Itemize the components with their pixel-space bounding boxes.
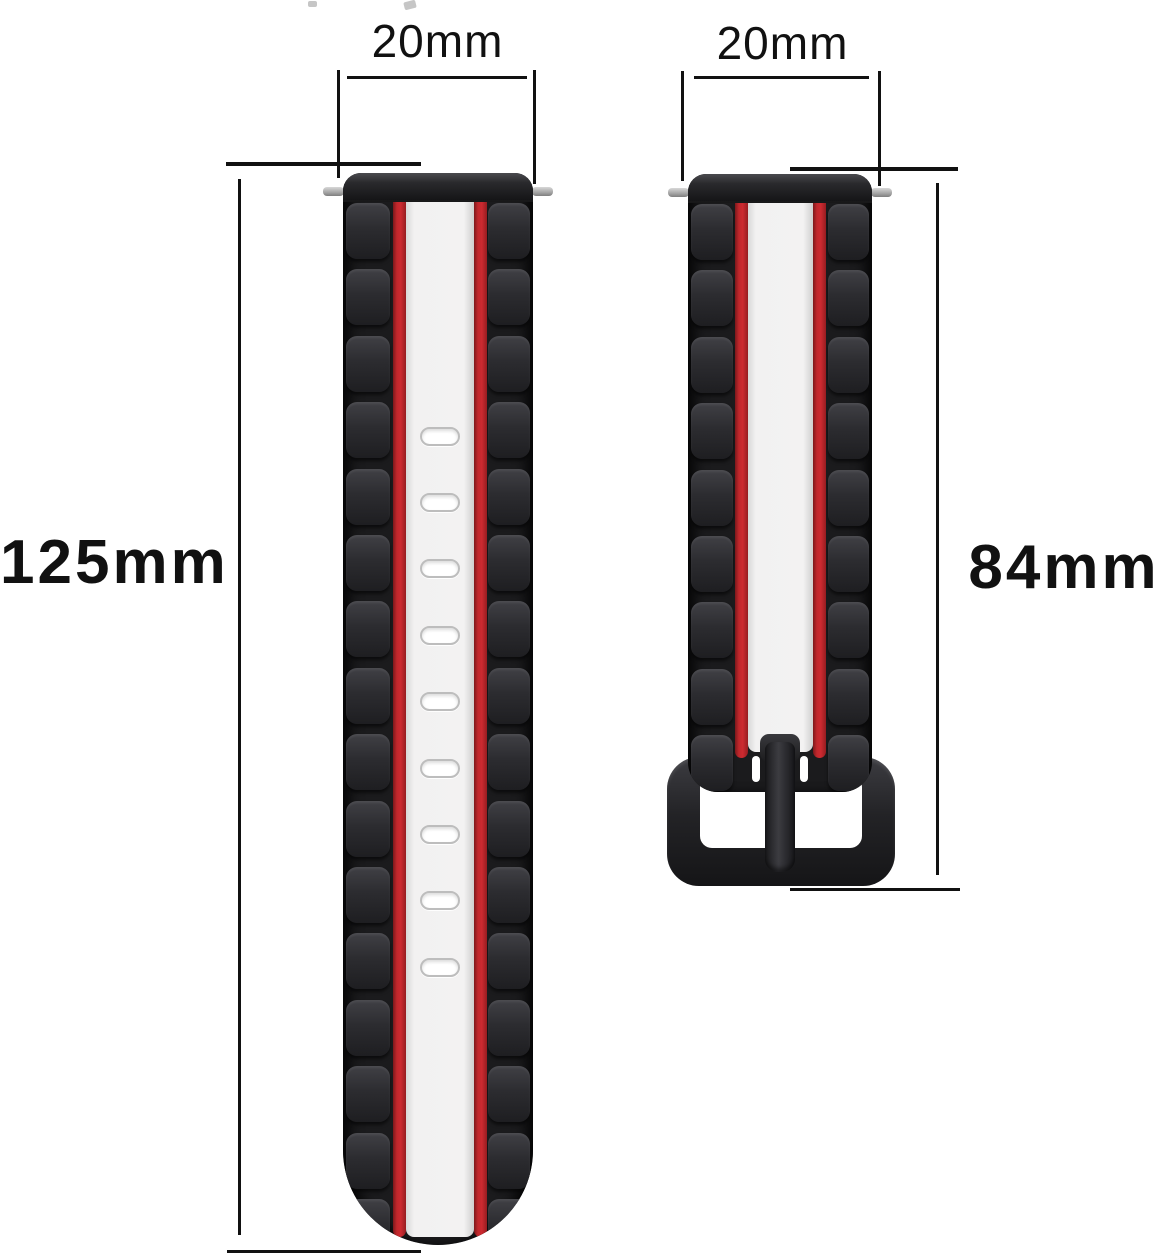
strap-link-segment [828,735,869,791]
cropped-mark [403,0,417,10]
strap-link-segment [828,204,869,260]
dim-line-right-length [936,183,939,875]
right-band-side-links [828,174,869,792]
white-stripe [748,198,813,752]
adjustment-hole [420,692,460,711]
strap-link-segment [691,403,733,459]
cropped-mark [308,1,317,7]
spring-bar-pin [323,187,344,196]
adjustment-hole [420,825,460,844]
right-band-buckle-strap [688,174,872,792]
strap-link-segment [828,270,869,326]
strap-link-segment [828,337,869,393]
strap-link-segment [691,204,733,260]
right-band-length-label: 84mm [966,532,1156,603]
right-band-center-stripes [735,198,826,758]
red-stripe [813,198,826,758]
strap-link-segment [691,536,733,592]
prong-notch [800,756,808,782]
strap-link-segment [828,470,869,526]
strap-link-segment [828,669,869,725]
dim-tick-right-width-a [681,71,684,181]
spring-bar-pin [532,187,553,196]
adjustment-hole [420,891,460,910]
dim-line-left-width [347,76,527,79]
dim-line-left-length [238,179,241,1235]
adjustment-hole [420,626,460,645]
adjustment-hole [420,759,460,778]
strap-link-segment [691,735,733,791]
strap-link-segment [691,337,733,393]
dim-tick-left-width-b [533,70,536,184]
strap-link-segment [691,470,733,526]
dim-tick-left-length-top [226,162,421,166]
buckle-prong [765,742,795,872]
adjustment-hole [420,427,460,446]
prong-notch [752,756,760,782]
right-band-width-label: 20mm [685,16,880,70]
adjustment-hole [420,559,460,578]
left-band-width-label: 20mm [340,14,535,68]
adjustment-hole [420,493,460,512]
adjustment-holes [343,173,533,1245]
dim-tick-left-length-bottom [227,1250,421,1253]
spring-bar-pin [668,188,689,197]
strap-link-segment [691,270,733,326]
strap-link-segment [691,602,733,658]
red-stripe [735,198,748,758]
spring-bar-pin [871,188,892,197]
dim-tick-right-length-top [790,167,958,171]
dim-line-right-width [694,76,869,79]
right-band-lug-end [688,174,872,203]
strap-link-segment [691,669,733,725]
strap-link-segment [828,536,869,592]
watch-band-diagram: 20mm 20mm 125mm 84mm [0,0,1156,1260]
right-band-side-links [691,174,733,792]
strap-link-segment [828,602,869,658]
dim-tick-right-length-bottom [790,888,960,891]
strap-link-segment [828,403,869,459]
left-band-long-strap [343,173,533,1245]
left-band-length-label: 125mm [0,527,216,598]
adjustment-hole [420,958,460,977]
